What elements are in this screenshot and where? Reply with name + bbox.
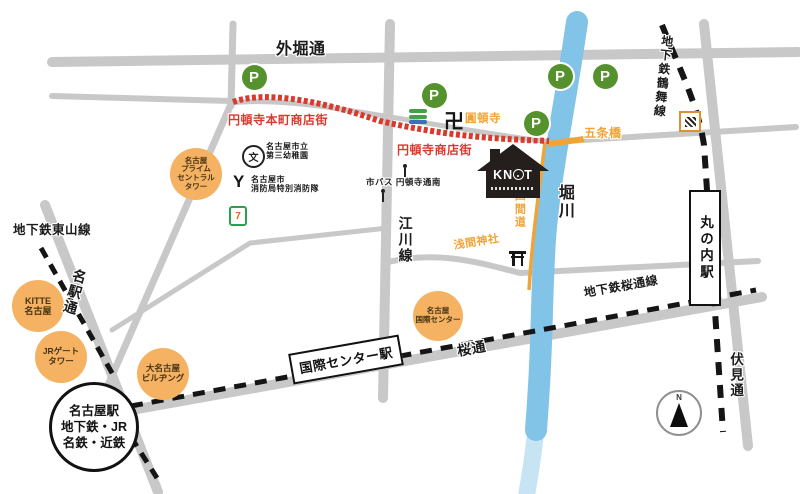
road-east-of-bridge [549, 127, 796, 142]
subway-sakura-dori-line [131, 290, 756, 406]
nagoya-station-circle: 名古屋駅地下鉄・JR名鉄・近鉄 [49, 382, 139, 472]
nagoya-station-line: 地下鉄・JR [61, 419, 127, 435]
horikawa-river-tail [527, 430, 536, 492]
road-station-endoji-diagonal [108, 104, 231, 385]
road-north-vertical [231, 24, 233, 106]
horikawa-river [536, 22, 577, 430]
road-sakura-dori [132, 297, 762, 410]
nagoya-station-line: 名古屋駅 [69, 403, 119, 419]
marunouchi-station-box: 丸の内駅 [689, 190, 721, 306]
road-west-horizontal [52, 96, 231, 101]
nagoya-station-line: 名鉄・近鉄 [63, 435, 126, 451]
map-canvas: 名古屋プライムセントラルタワーKITTE名古屋JRゲートタワー大名古屋ビルヂング… [0, 0, 800, 494]
road-sotobori-dori [52, 52, 798, 62]
